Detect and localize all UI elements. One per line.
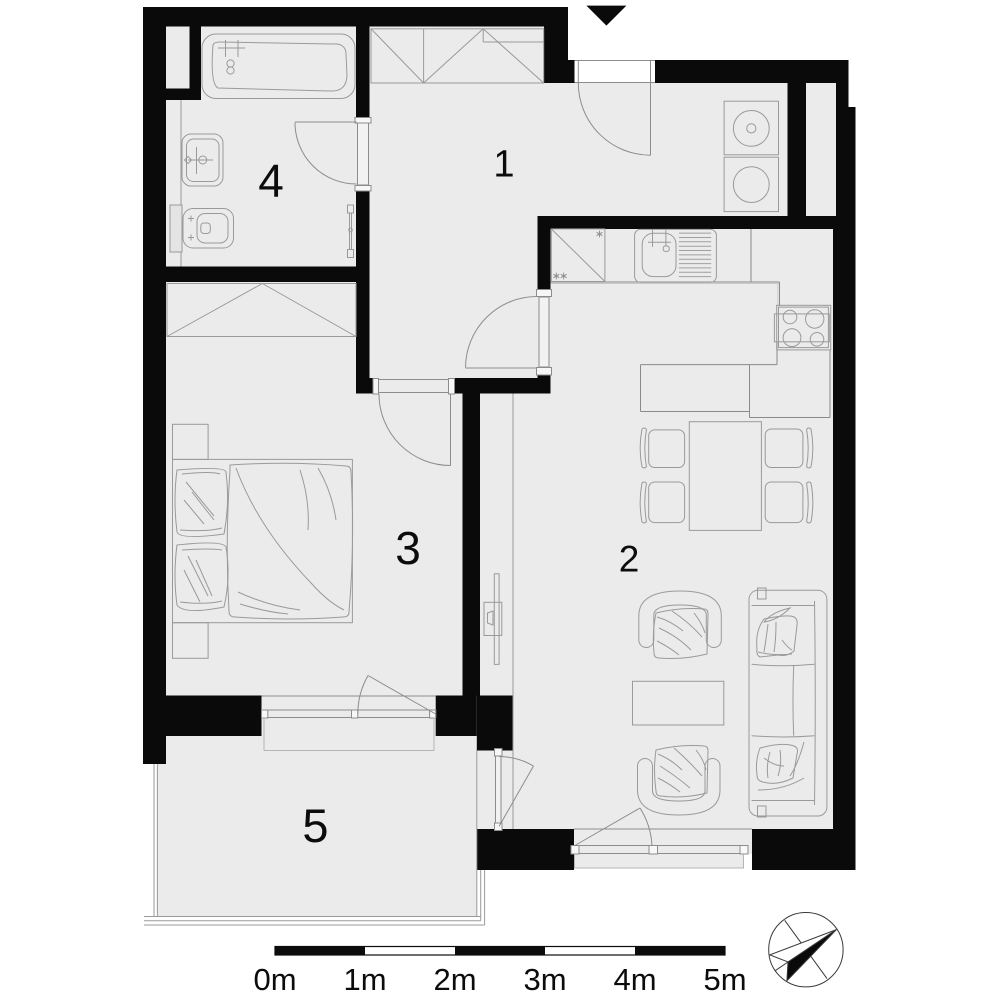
svg-text:4: 4 bbox=[258, 154, 284, 206]
svg-text:4m: 4m bbox=[613, 962, 656, 997]
svg-text:0m: 0m bbox=[253, 962, 296, 997]
svg-text:5m: 5m bbox=[703, 962, 746, 997]
svg-text:1m: 1m bbox=[343, 962, 386, 997]
svg-text:3m: 3m bbox=[523, 962, 566, 997]
svg-text:1: 1 bbox=[493, 144, 514, 186]
svg-text:2: 2 bbox=[619, 539, 640, 580]
svg-text:2m: 2m bbox=[433, 962, 476, 997]
svg-text:3: 3 bbox=[395, 522, 421, 574]
svg-text:5: 5 bbox=[302, 799, 328, 852]
